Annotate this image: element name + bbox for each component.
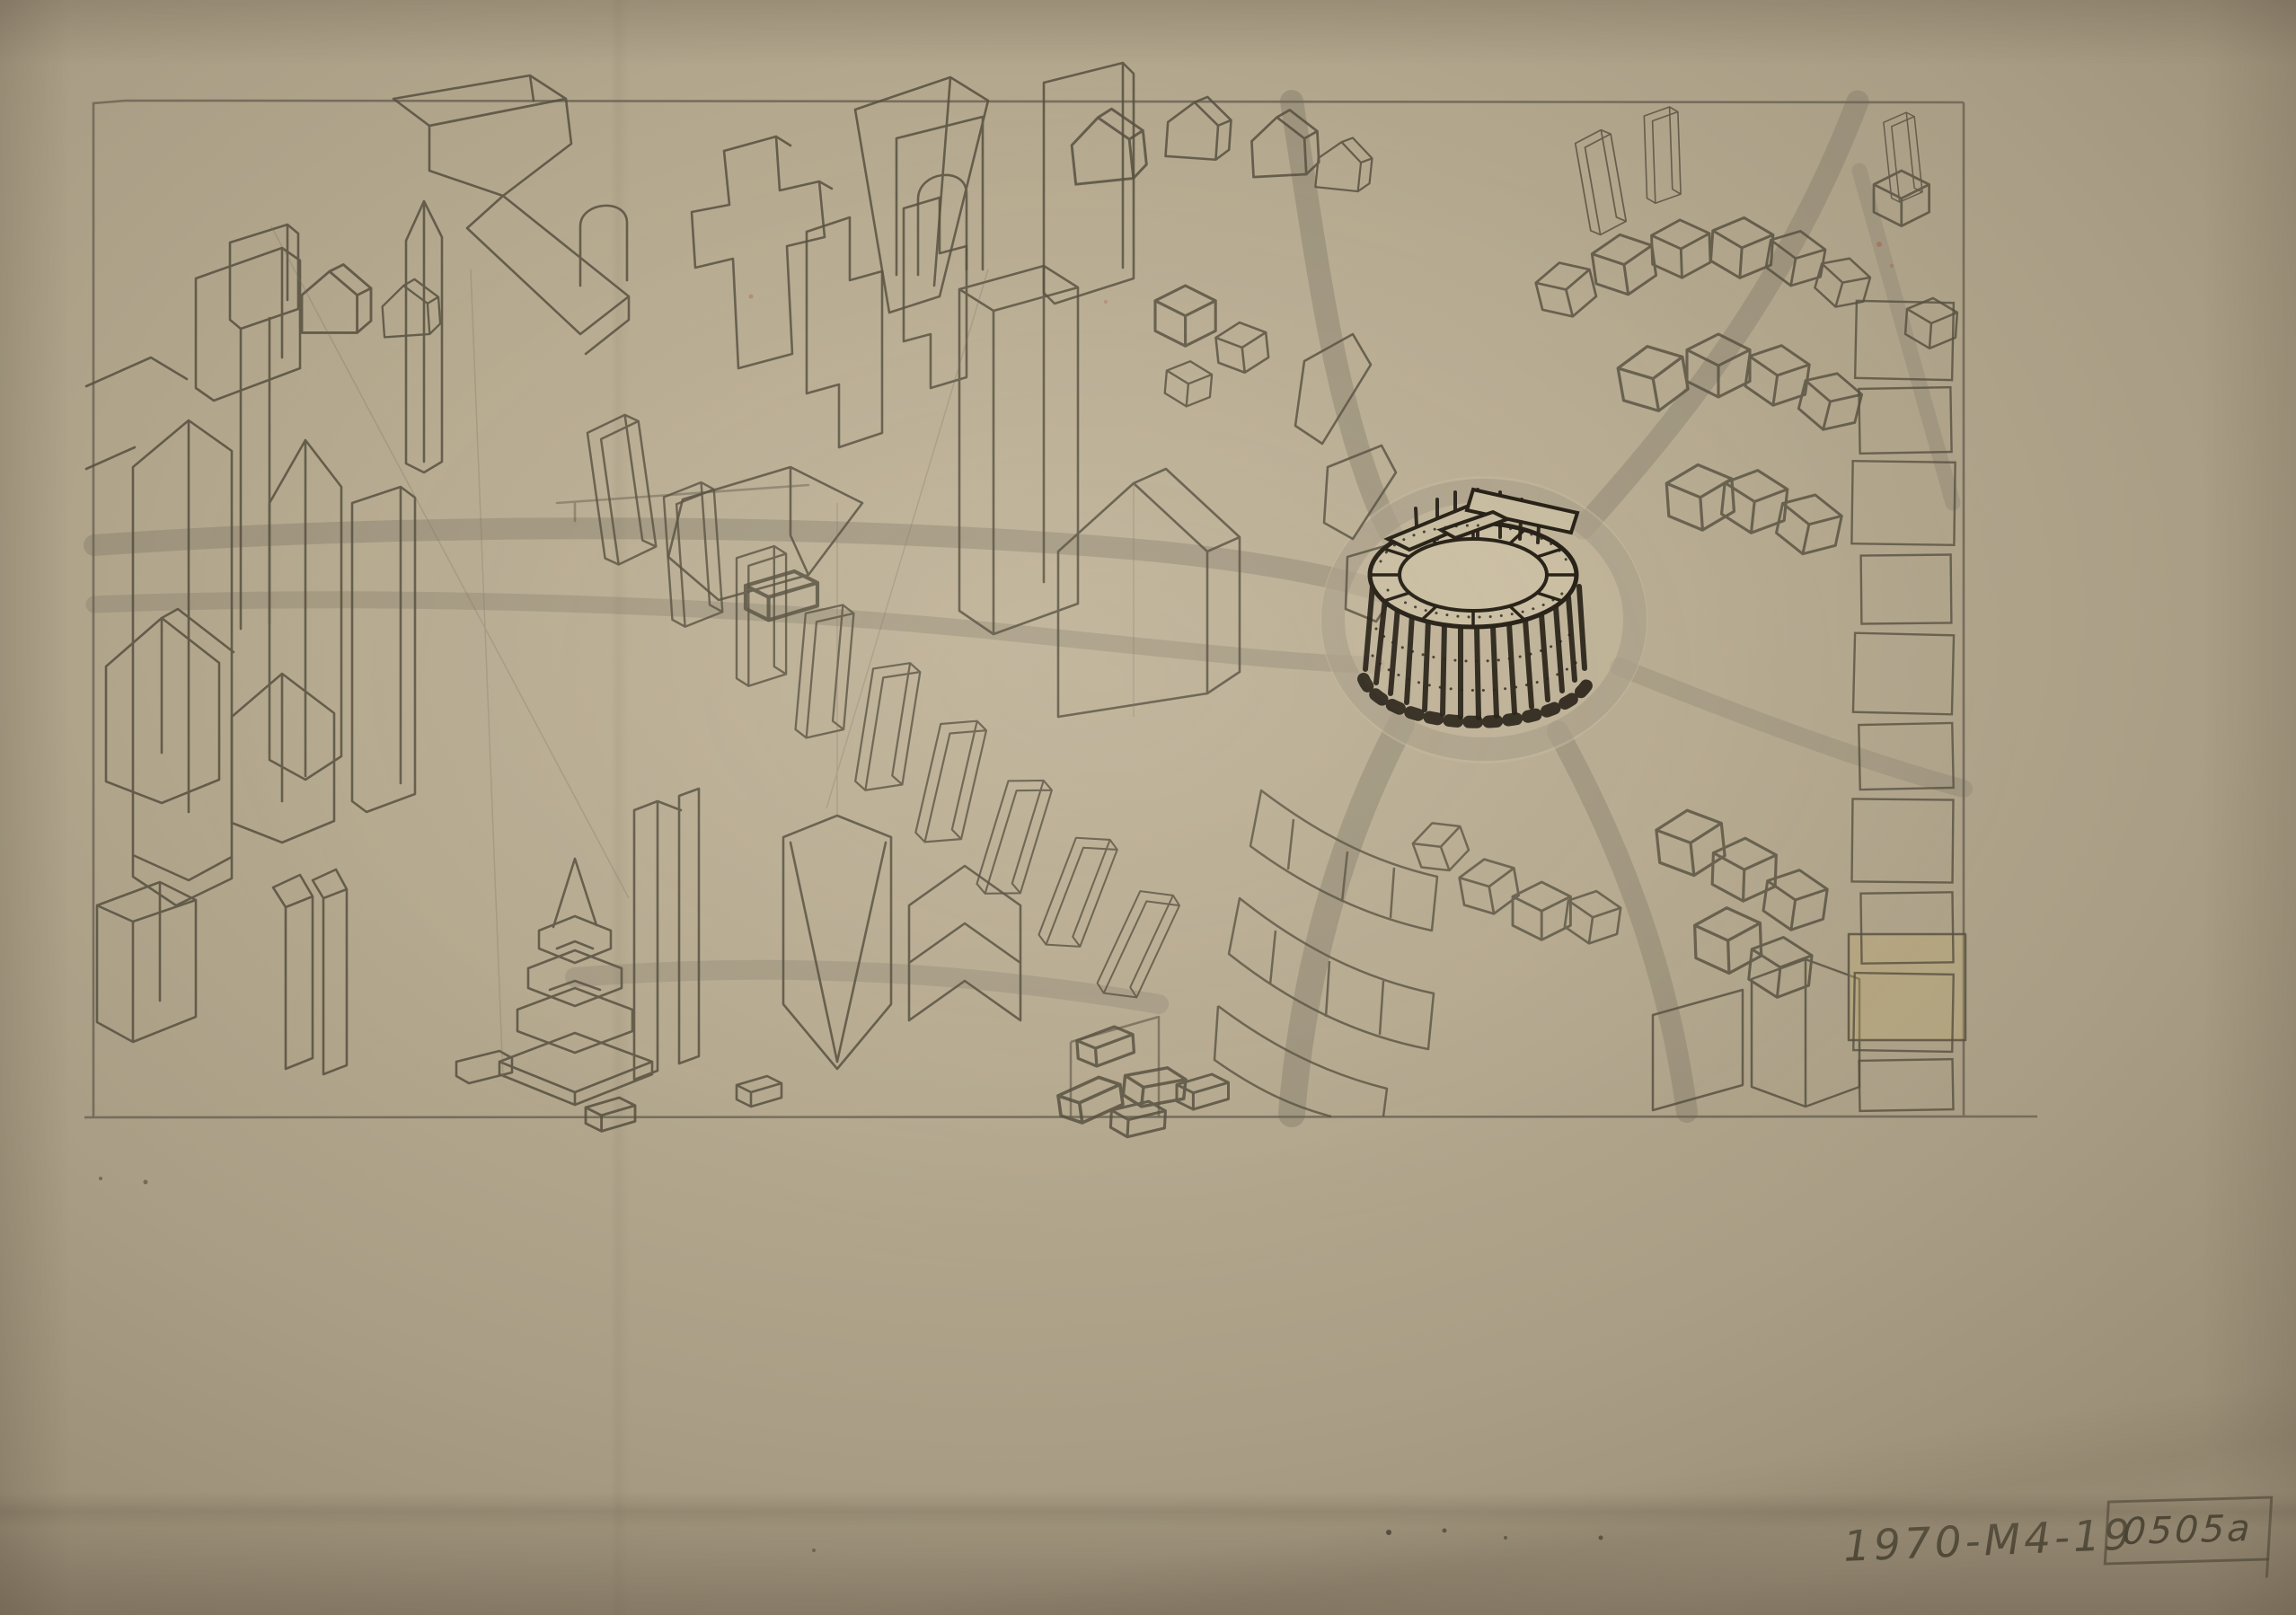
scattered-bricks — [737, 1026, 1229, 1139]
photographed-pencil-sketch: 1970-M4-19 0505a — [0, 0, 2296, 1615]
stamp-code: 0505a — [2121, 1506, 2254, 1553]
v-building — [783, 816, 891, 1069]
plaza-terraces — [1214, 790, 1622, 1116]
chevron-building — [909, 866, 1020, 1020]
pagoda-totem — [456, 859, 652, 1131]
slab-avenue — [586, 413, 1182, 1007]
topleft-megastructures — [393, 63, 1134, 368]
ring-roads — [94, 101, 1964, 1114]
city-sketch-svg — [0, 0, 2296, 1615]
left-building-cluster — [86, 201, 442, 1074]
stamp-box: 0505a — [2104, 1496, 2274, 1565]
